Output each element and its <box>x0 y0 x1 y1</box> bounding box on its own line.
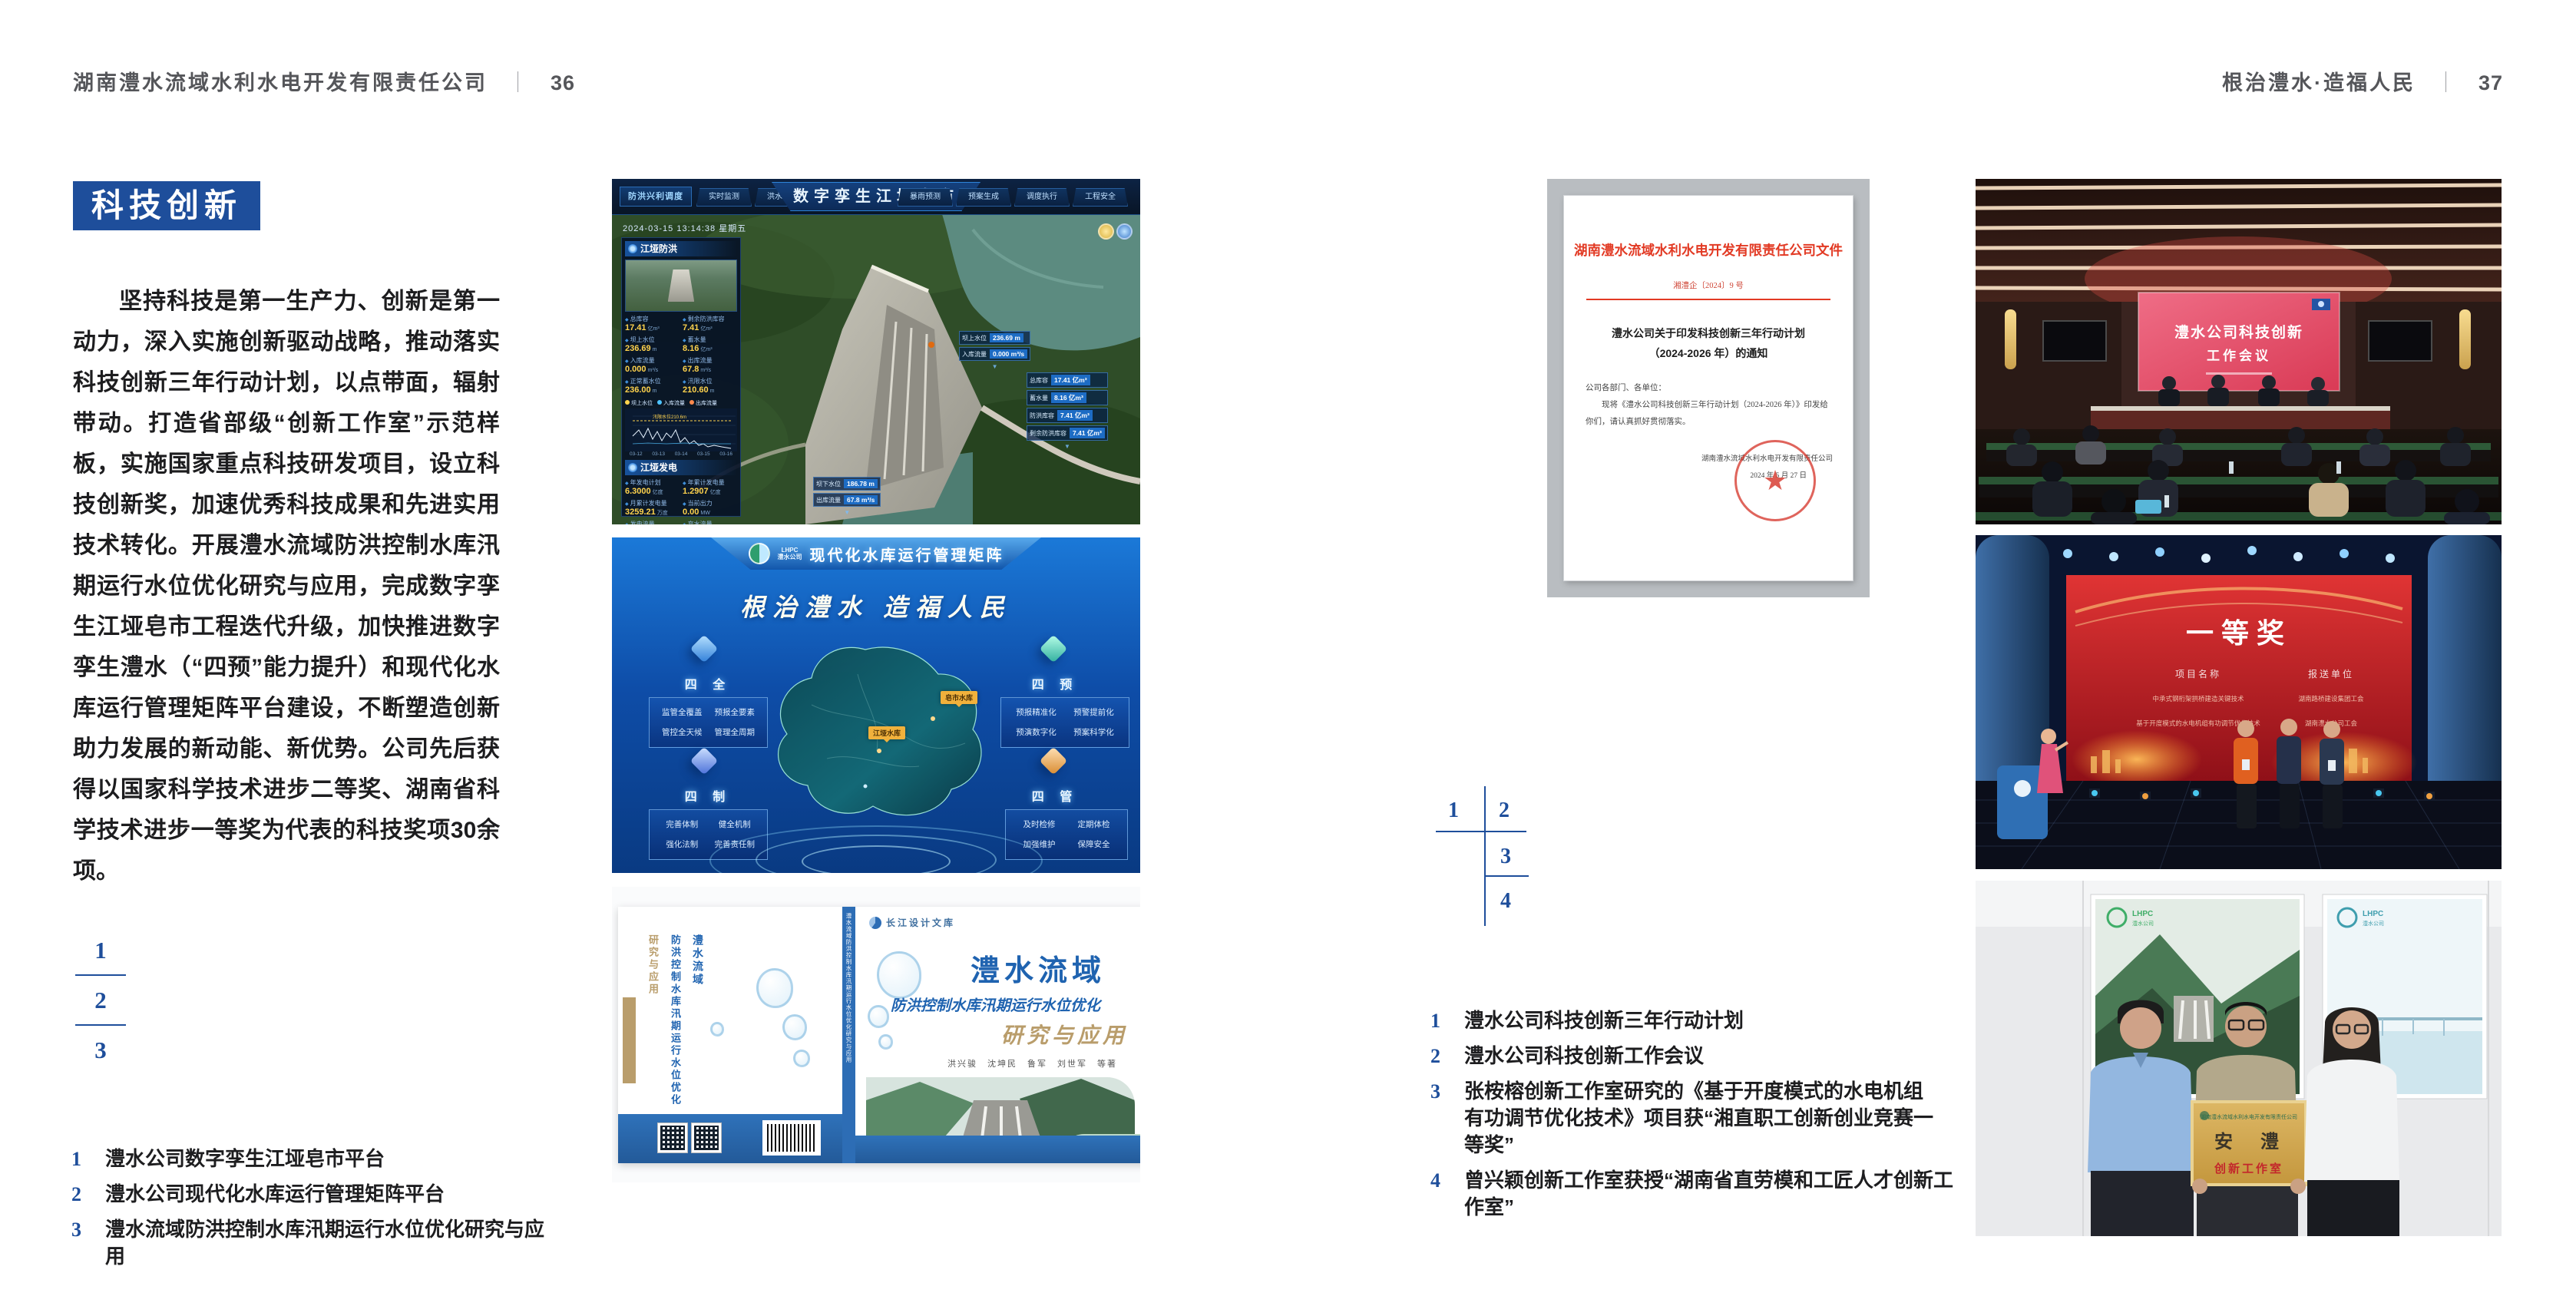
callout-downstream-level: 坝下水位186.78 m 出库流量67.8 m³/s <box>813 477 881 516</box>
water-droplet-icon <box>877 951 921 999</box>
index-line-horizontal <box>1436 831 1526 832</box>
svg-text:LHPC: LHPC <box>2363 910 2383 918</box>
matrix-group-title: 四 制 <box>658 786 758 805</box>
caption-number: 2 <box>1430 1043 1450 1070</box>
caption-text: 曾兴颖创新工作室获授“湖南省直劳模和工匠人才创新工作室” <box>1464 1167 1960 1221</box>
water-droplet-icon <box>710 1022 724 1037</box>
figure-index-4: 4 <box>1500 891 1511 912</box>
matrix-group-panel: 监管全覆盖预报全要素 管控全天候管理全周期 <box>649 697 768 748</box>
matrix-title: 现代化水库运行管理矩阵 <box>810 543 1004 565</box>
right-running-head: 根治澧水·造福人民｜37 <box>2222 66 2503 96</box>
left-caption-list: 1 澧水公司数字孪生江垭皂市平台 2 澧水公司现代化水库运行管理矩阵平台 3 澧… <box>71 1146 563 1278</box>
map-label-reservoir: 江垭水库 <box>868 726 905 739</box>
caption-number: 3 <box>1430 1078 1450 1159</box>
svg-text:汛限水位210.6m: 汛限水位210.6m <box>653 414 686 420</box>
figure-management-matrix: LHPC澧水公司 现代化水库运行管理矩阵 根治澧水 造福人民 皂市水库 江垭水库 <box>612 537 1140 873</box>
book-title-sub: 防洪控制水库汛期运行水位优化 <box>891 993 1100 1015</box>
dashboard-nav-button: 工程安全 <box>1073 188 1128 207</box>
chart-x-axis: 03-1203-1303-1403-1503-16 <box>625 451 737 457</box>
right-page-number: 37 <box>2478 71 2503 94</box>
matrix-group-panel: 预报精准化预警提前化 预演数字化预案科学化 <box>1000 697 1129 748</box>
caption-number: 4 <box>1430 1167 1450 1221</box>
qr-code <box>692 1123 721 1152</box>
svg-text:创新工作室: 创新工作室 <box>2214 1162 2283 1175</box>
section-body-paragraph: 坚持科技是第一生产力、创新是第一动力，深入实施创新驱动战略，推动落实科技创新三年… <box>73 281 500 891</box>
dam-inset-photo <box>625 260 737 312</box>
matrix-header: LHPC澧水公司 现代化水库运行管理矩阵 <box>711 537 1041 570</box>
figure-meeting-photo: 澧水公司科技创新 工作会议 <box>1976 179 2502 524</box>
figure-official-document: 湖南澧水流域水利水电开发有限责任公司文件 湘澧企〔2024〕9 号 澧水公司关于… <box>1547 179 1870 597</box>
matrix-group-icon <box>1043 751 1063 771</box>
left-figure-index: 1 2 3 <box>75 938 126 1062</box>
matrix-group-icon <box>694 751 714 771</box>
svg-text:工作会议: 工作会议 <box>2207 348 2271 363</box>
figure-award-stage-photo: 一等奖 项目名称 报送单位 中承式钢桁架拱桥建造关键技术 湖南路桥建设集团工会 … <box>1976 535 2502 869</box>
alert-icon <box>1116 223 1133 240</box>
caption-text: 张桉榕创新工作室研究的《基于开度模式的水电机组有功调节优化技术》项目获“湘直职工… <box>1464 1078 1940 1159</box>
section-title: 科技创新 <box>73 181 260 230</box>
document-number: 湘澧企〔2024〕9 号 <box>1564 279 1853 291</box>
matrix-group-icon <box>1043 639 1063 659</box>
water-droplet-icon <box>793 1050 810 1067</box>
panel-power-header: 江垭发电 <box>625 460 737 475</box>
document-body: 公司各部门、各单位： 现将《澧水公司科技创新三年行动计划（2024-2026 年… <box>1586 380 1831 431</box>
caption-item: 4 曾兴颖创新工作室获授“湖南省直劳模和工匠人才创新工作室” <box>1430 1167 1960 1221</box>
svg-text:报送单位: 报送单位 <box>2308 668 2354 679</box>
gold-plaque: 湖南澧水流域水利水电开发有限责任公司 安 澧 创新工作室 <box>2192 1102 2306 1185</box>
power-stats-grid: 年发电计划6.3000亿度 年累计发电量1.2907亿度 月累计发电量3259.… <box>625 478 737 524</box>
lhpc-logo-text: LHPC澧水公司 <box>778 547 802 560</box>
caption-item: 1 澧水公司数字孪生江垭皂市平台 <box>71 1146 563 1172</box>
stat-cell: 当前出力0.00MW <box>683 499 737 518</box>
matrix-group-title: 四 管 <box>1005 786 1105 805</box>
figure-index-2: 2 <box>1499 800 1510 822</box>
award-winners <box>2234 719 2344 828</box>
callout-capacity: 总库容17.41 亿m³ 蓄水量8.16 亿m³ 防洪库容7.41 亿m³ 剩余… <box>1027 372 1108 450</box>
figure-index-divider <box>75 1024 126 1026</box>
dashboard-left-panel: 江垭防洪 总库容17.41亿m³ 剩余防洪库容7.41亿m³ 坝上水位236.6… <box>621 237 741 517</box>
left-header-company: 湖南澧水流域水利水电开发有限责任公司 <box>73 71 488 94</box>
figure-plaque-photo: LHPC 澧水公司 LHPC 澧水公司 <box>1976 881 2502 1236</box>
user-avatar-icon <box>1098 223 1114 240</box>
right-header-divider: ｜ <box>2435 71 2459 94</box>
caption-item: 3 张桉榕创新工作室研究的《基于开度模式的水电机组有功调节优化技术》项目获“湘直… <box>1430 1078 1960 1159</box>
document-red-rule <box>1586 299 1830 300</box>
caption-item: 2 澧水公司科技创新工作会议 <box>1430 1043 1960 1070</box>
stat-cell: 正常蓄水位236.00m <box>625 377 680 396</box>
barcode <box>762 1120 821 1156</box>
caption-text: 澧水公司科技创新三年行动计划 <box>1464 1007 1744 1034</box>
dashboard-datetime: 2024-03-15 13:14:38 星期五 <box>623 222 746 234</box>
water-droplet-icon <box>878 1034 893 1050</box>
caption-text: 澧水公司科技创新工作会议 <box>1464 1043 1704 1070</box>
figure-index-1: 1 <box>75 938 126 962</box>
dashboard-home-tab: 防洪兴利调度 <box>620 187 692 207</box>
document-page: 湖南澧水流域水利水电开发有限责任公司文件 湘澧企〔2024〕9 号 澧水公司关于… <box>1564 196 1853 580</box>
right-caption-list: 1 澧水公司科技创新三年行动计划 2 澧水公司科技创新工作会议 3 张桉榕创新工… <box>1430 1007 1960 1229</box>
figure-index-1: 1 <box>1448 800 1459 822</box>
right-figure-index: 1 2 3 4 <box>1436 783 1537 931</box>
meeting-room-scene: 澧水公司科技创新 工作会议 <box>1976 179 2502 524</box>
svg-text:一等奖: 一等奖 <box>2186 617 2292 649</box>
water-level-line-chart: 汛限水位210.6m <box>625 408 737 451</box>
stat-cell: 出库流量67.8m³/s <box>683 356 737 375</box>
caption-text: 澧水流域防洪控制水库汛期运行水位优化研究与应用 <box>105 1216 563 1270</box>
matrix-group-title: 四 全 <box>658 674 758 693</box>
figure-index-2: 2 <box>75 988 126 1012</box>
left-header-divider: ｜ <box>508 71 531 94</box>
official-seal: ★ <box>1734 440 1816 521</box>
left-page-number: 36 <box>551 71 575 94</box>
book-front-cover: 长江设计文库 澧水流域 防洪控制水库汛期运行水位优化 研究与应用 洪兴骏 沈坤民… <box>855 907 1140 1163</box>
ripple-ring <box>802 845 951 873</box>
figure-book-cover: 澧水流域 防洪控制水库汛期运行水位优化 研究与应用 澧水流域防洪控制水库汛期运行… <box>612 887 1140 1182</box>
water-droplet-icon <box>756 968 793 1008</box>
publisher-series-brand: 长江设计文库 <box>869 916 955 929</box>
book-title-main: 澧水流域 <box>971 947 1106 989</box>
dashboard-nav-button: 调度执行 <box>1014 188 1070 207</box>
dashboard-nav-button: 实时监测 <box>696 188 752 207</box>
matrix-group-title: 四 预 <box>1005 674 1105 693</box>
caption-number: 3 <box>71 1216 91 1270</box>
stat-cell: 蓄水量8.16亿m³ <box>683 336 737 355</box>
caption-item: 1 澧水公司科技创新三年行动计划 <box>1430 1007 1960 1034</box>
book-authors: 洪兴骏 沈坤民 鲁军 刘世军 等著 <box>947 1057 1117 1070</box>
document-red-heading: 湖南澧水流域水利水电开发有限责任公司文件 <box>1564 240 1853 260</box>
stat-cell: 发电流量0.00m³/s <box>625 520 680 524</box>
chart-legend: 坝上水位 入库流量 出库流量 <box>625 399 737 407</box>
series-logo-icon <box>869 917 881 929</box>
matrix-group-icon <box>694 639 714 659</box>
caption-item: 2 澧水公司现代化水库运行管理矩阵平台 <box>71 1181 563 1208</box>
book-spine: 澧水流域防洪控制水库汛期运行水位优化研究与应用 <box>842 907 855 1163</box>
flood-stats-grid: 总库容17.41亿m³ 剩余防洪库容7.41亿m³ 坝上水位236.69m 蓄水… <box>625 315 737 396</box>
water-droplet-icon <box>782 1014 807 1040</box>
caption-number: 1 <box>71 1146 91 1172</box>
dashboard-topbar: 防洪兴利调度 实时监测 洪水预报 防洪预警 数字孪生江垭皂市 暴雨预测 预案生成… <box>612 179 1140 215</box>
book-spread: 湖南澧水流域水利水电开发有限责任公司｜36 根治澧水·造福人民｜37 科技创新 … <box>0 0 2576 1306</box>
stat-cell: 汛限水位210.60m <box>683 377 737 396</box>
award-stage-scene: 一等奖 项目名称 报送单位 中承式钢桁架拱桥建造关键技术 湖南路桥建设集团工会 … <box>1976 535 2502 869</box>
front-cover-bottom-band <box>855 1136 1140 1163</box>
svg-text:湖南澧水流域水利水电开发有限责任公司: 湖南澧水流域水利水电开发有限责任公司 <box>2201 1113 2297 1120</box>
dashboard-nav-button: 暴雨预测 <box>898 188 953 207</box>
stat-cell: 月累计发电量3259.21万度 <box>625 499 680 518</box>
plaque-group-scene: LHPC 澧水公司 LHPC 澧水公司 <box>1976 881 2502 1236</box>
stat-cell: 总库容17.41亿m³ <box>625 315 680 334</box>
stat-cell: 入库流量0.000m³/s <box>625 356 680 375</box>
callout-upstream-level: 坝上水位236.69 m 入库流量0.000 m³/s <box>959 331 1030 370</box>
svg-text:项目名称: 项目名称 <box>2175 668 2221 679</box>
figure-index-divider <box>75 974 126 976</box>
caption-text: 澧水公司数字孪生江垭皂市平台 <box>105 1146 385 1172</box>
matrix-slogan: 根治澧水 造福人民 <box>612 588 1140 623</box>
caption-item: 3 澧水流域防洪控制水库汛期运行水位优化研究与应用 <box>71 1216 563 1270</box>
caption-text: 澧水公司现代化水库运行管理矩阵平台 <box>105 1181 445 1208</box>
stat-cell: 剩余防洪库容7.41亿m³ <box>683 315 737 334</box>
right-header-motto: 根治澧水·造福人民 <box>2222 71 2416 94</box>
svg-text:中承式钢桁架拱桥建造关键技术: 中承式钢桁架拱桥建造关键技术 <box>2152 695 2244 703</box>
qr-code <box>658 1123 687 1152</box>
figure-index-3: 3 <box>75 1038 126 1062</box>
figure-index-3: 3 <box>1500 846 1511 868</box>
back-cover-vertical-title: 澧水流域 防洪控制水库汛期运行水位优化 研究与应用 <box>646 934 706 1106</box>
svg-text:湖南路桥建设集团工会: 湖南路桥建设集团工会 <box>2298 695 2364 703</box>
book-back-cover: 澧水流域 防洪控制水库汛期运行水位优化 研究与应用 <box>618 907 842 1163</box>
stat-cell: 年累计发电量1.2907亿度 <box>683 478 737 498</box>
lhpc-logo-icon <box>749 543 770 564</box>
book-title-tail: 研究与应用 <box>1001 1019 1128 1050</box>
svg-text:澧水公司: 澧水公司 <box>2363 920 2384 927</box>
stat-cell: 年发电计划6.3000亿度 <box>625 478 680 498</box>
stat-cell: 坝上水位236.69m <box>625 336 680 355</box>
svg-text:澧水公司: 澧水公司 <box>2132 920 2154 927</box>
map-label-reservoir: 皂市水库 <box>941 691 977 704</box>
back-cover-tan-block <box>623 997 636 1083</box>
svg-text:安 澧: 安 澧 <box>2214 1131 2283 1152</box>
panel-flood-header: 江垭防洪 <box>625 241 737 256</box>
stat-cell: 弃水流量0.00m³/s <box>683 520 737 524</box>
index-line-vertical <box>1484 786 1486 926</box>
water-droplet-icon <box>868 1005 889 1028</box>
book-cover-spread: 澧水流域 防洪控制水库汛期运行水位优化 研究与应用 澧水流域防洪控制水库汛期运行… <box>618 907 1140 1163</box>
svg-text:澧水公司科技创新: 澧水公司科技创新 <box>2174 323 2303 341</box>
document-title: 澧水公司关于印发科技创新三年行动计划 （2024-2026 年）的通知 <box>1564 323 1853 363</box>
left-running-head: 湖南澧水流域水利水电开发有限责任公司｜36 <box>73 66 575 96</box>
caption-number: 2 <box>71 1181 91 1208</box>
figure-digital-twin-dashboard: 防洪兴利调度 实时监测 洪水预报 防洪预警 数字孪生江垭皂市 暴雨预测 预案生成… <box>612 179 1140 524</box>
dashboard-nav-button: 预案生成 <box>956 188 1011 207</box>
caption-number: 1 <box>1430 1007 1450 1034</box>
index-line-horizontal <box>1484 875 1529 877</box>
svg-text:LHPC: LHPC <box>2132 910 2153 918</box>
